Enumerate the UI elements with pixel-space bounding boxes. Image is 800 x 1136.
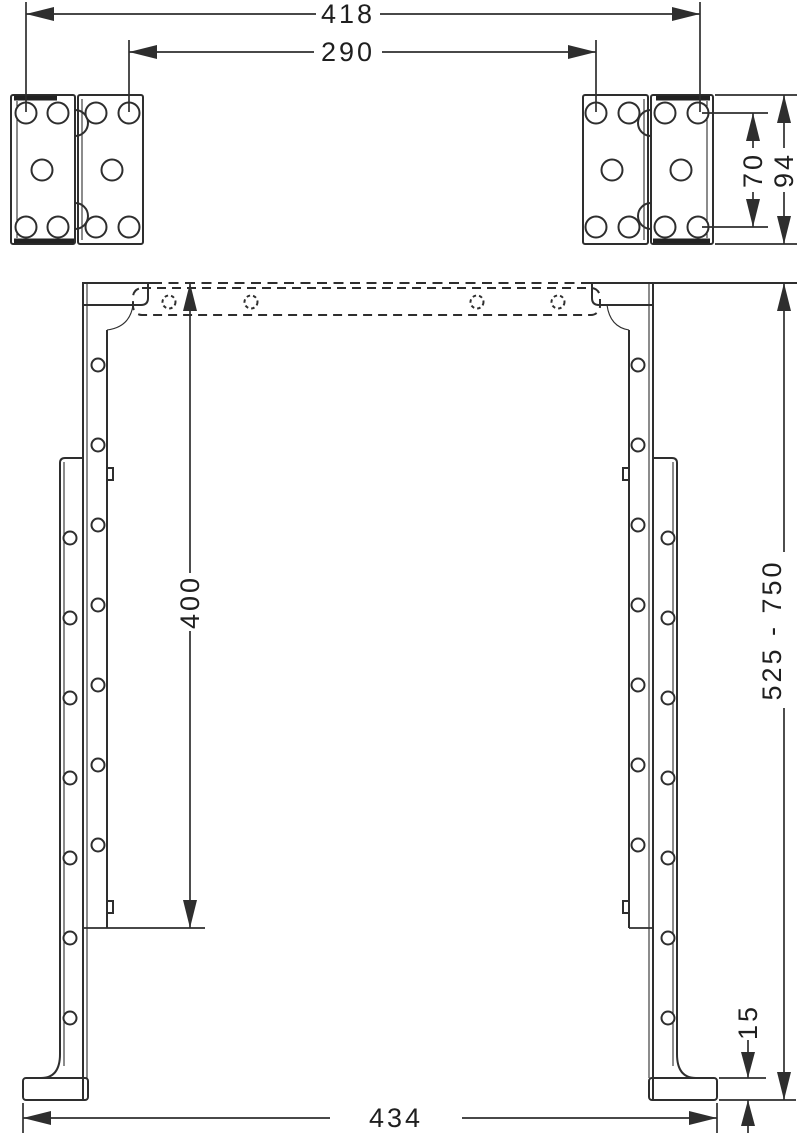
dimension-label-70: 70 [738, 152, 768, 188]
rail-hole [92, 519, 105, 532]
front-view: 400 525 - 750 15 434 [23, 283, 797, 1133]
dimension-label-525-750: 525 - 750 [757, 559, 787, 700]
foot-right [649, 1078, 717, 1100]
clip-notch [107, 901, 113, 913]
technical-drawing: 418 290 70 [0, 0, 800, 1136]
rail-hole [632, 359, 645, 372]
rail-hole [64, 852, 77, 865]
screw-hole [102, 160, 123, 181]
arrowhead-up [746, 113, 760, 141]
inner-rail-right [623, 283, 653, 1100]
dimension-label-15: 15 [733, 1004, 763, 1040]
arrowhead-right [568, 45, 596, 59]
arrowhead-down [777, 216, 791, 244]
arrowhead-left [129, 45, 157, 59]
hidden-screw-hole [245, 296, 258, 309]
dimension-290: 290 [129, 37, 596, 112]
foot-left [23, 1078, 88, 1100]
arrowhead-up [777, 283, 791, 311]
clip-notch [623, 468, 629, 480]
rail-hole [64, 612, 77, 625]
screw-hole [619, 217, 640, 238]
hidden-screw-hole [552, 296, 565, 309]
screw-hole [48, 217, 69, 238]
outer-rail-left [23, 458, 88, 1100]
dimension-label-400: 400 [175, 575, 205, 629]
arrowhead-down [741, 1052, 755, 1078]
rail-hole [92, 599, 105, 612]
rail-hole [662, 1012, 675, 1025]
rail-hole [64, 692, 77, 705]
rail-hole [662, 532, 675, 545]
dimension-15: 15 [719, 1004, 766, 1133]
rail-hole [662, 932, 675, 945]
dimension-label-290: 290 [321, 37, 375, 67]
rail-hole [632, 759, 645, 772]
clip-notch [107, 468, 113, 480]
dimension-525-750: 525 - 750 [719, 283, 796, 1100]
screw-hole [602, 160, 623, 181]
installation-drawing-page: 418 290 70 [0, 0, 800, 1136]
screw-hole [655, 103, 676, 124]
rail-hole [92, 839, 105, 852]
rail-hole [92, 439, 105, 452]
rail-hole [662, 692, 675, 705]
dimension-label-434: 434 [369, 1103, 423, 1133]
crossbar-bracket-left [83, 283, 148, 305]
crossbar-bracket-right [592, 283, 653, 305]
rail-hole [92, 759, 105, 772]
rail-hole [64, 772, 77, 785]
arrowhead-right [672, 7, 700, 21]
rail-hole [632, 679, 645, 692]
arrowhead-down [183, 900, 197, 928]
inner-rail-left [83, 283, 205, 1100]
dimension-70: 70 [702, 113, 768, 227]
rail-hole [662, 612, 675, 625]
dimension-434: 434 [23, 1103, 717, 1133]
hidden-screw-hole [471, 296, 484, 309]
outer-rail-right [649, 458, 717, 1100]
arrowhead-down [777, 1072, 791, 1100]
hidden-screw-hole [163, 296, 176, 309]
rail-hole [64, 532, 77, 545]
rail-hole [632, 599, 645, 612]
screw-hole [655, 217, 676, 238]
rail-hole [662, 772, 675, 785]
wall-bracket-pair-right [583, 95, 713, 244]
arrowhead-up [777, 95, 791, 123]
dimension-label-418: 418 [321, 0, 375, 29]
clip-notch [623, 901, 629, 913]
screw-hole [86, 103, 107, 124]
arrowhead-left [26, 7, 54, 21]
screw-hole [671, 160, 692, 181]
screw-hole [48, 103, 69, 124]
screw-hole [32, 160, 53, 181]
screw-hole [119, 217, 140, 238]
wall-bracket-pair-left [11, 95, 143, 244]
arrowhead-left [23, 1111, 51, 1125]
gusset-fillet-left [107, 305, 133, 330]
arrowhead-up [741, 1100, 755, 1126]
rail-hole [64, 1012, 77, 1025]
screw-hole [86, 217, 107, 238]
dimension-label-94: 94 [769, 152, 799, 188]
rail-hole [92, 679, 105, 692]
dimension-400: 400 [175, 283, 205, 928]
rail-hole [632, 839, 645, 852]
hidden-crossbar [133, 288, 600, 315]
rail-hole [64, 932, 77, 945]
rail-hole [92, 359, 105, 372]
top-view: 418 290 70 [11, 0, 799, 244]
screw-hole [586, 217, 607, 238]
screw-hole [16, 217, 37, 238]
rail-hole [662, 852, 675, 865]
rail-hole [632, 439, 645, 452]
gusset-fillet-right [607, 305, 629, 330]
arrowhead-right [689, 1111, 717, 1125]
screw-hole [619, 103, 640, 124]
arrowhead-down [746, 199, 760, 227]
rail-hole [632, 519, 645, 532]
